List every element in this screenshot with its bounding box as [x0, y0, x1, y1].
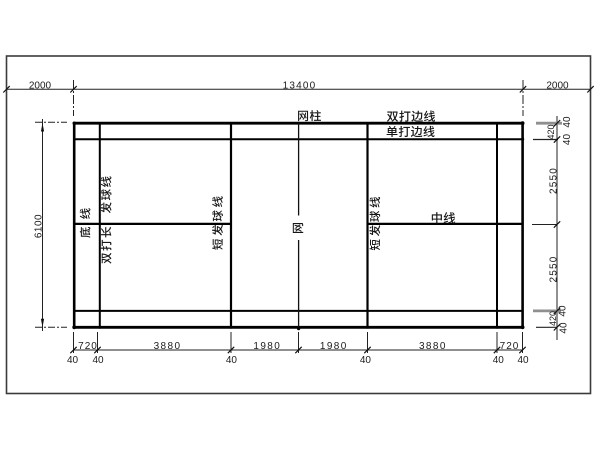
- svg-text:720: 720: [78, 341, 98, 352]
- svg-text:40: 40: [562, 134, 573, 146]
- svg-text:420: 420: [548, 311, 558, 326]
- svg-text:3880: 3880: [154, 341, 182, 352]
- svg-text:40: 40: [67, 355, 79, 366]
- svg-text:720: 720: [500, 341, 520, 352]
- svg-text:2550: 2550: [549, 255, 560, 282]
- svg-text:1980: 1980: [253, 341, 281, 352]
- svg-text:2550: 2550: [549, 167, 560, 194]
- svg-text:420: 420: [546, 124, 556, 139]
- svg-text:40: 40: [558, 305, 569, 317]
- svg-text:3880: 3880: [419, 341, 447, 352]
- svg-text:2000: 2000: [29, 81, 52, 92]
- svg-text:40: 40: [493, 355, 505, 366]
- svg-text:40: 40: [559, 322, 570, 334]
- svg-text:40: 40: [562, 116, 573, 128]
- svg-text:2000: 2000: [546, 81, 569, 92]
- svg-text:6100: 6100: [33, 214, 44, 238]
- svg-text:40: 40: [226, 355, 238, 366]
- svg-text:40: 40: [360, 355, 372, 366]
- svg-text:40: 40: [92, 355, 104, 366]
- svg-text:40: 40: [517, 355, 529, 366]
- svg-text:13400: 13400: [283, 81, 317, 92]
- svg-text:1980: 1980: [320, 341, 348, 352]
